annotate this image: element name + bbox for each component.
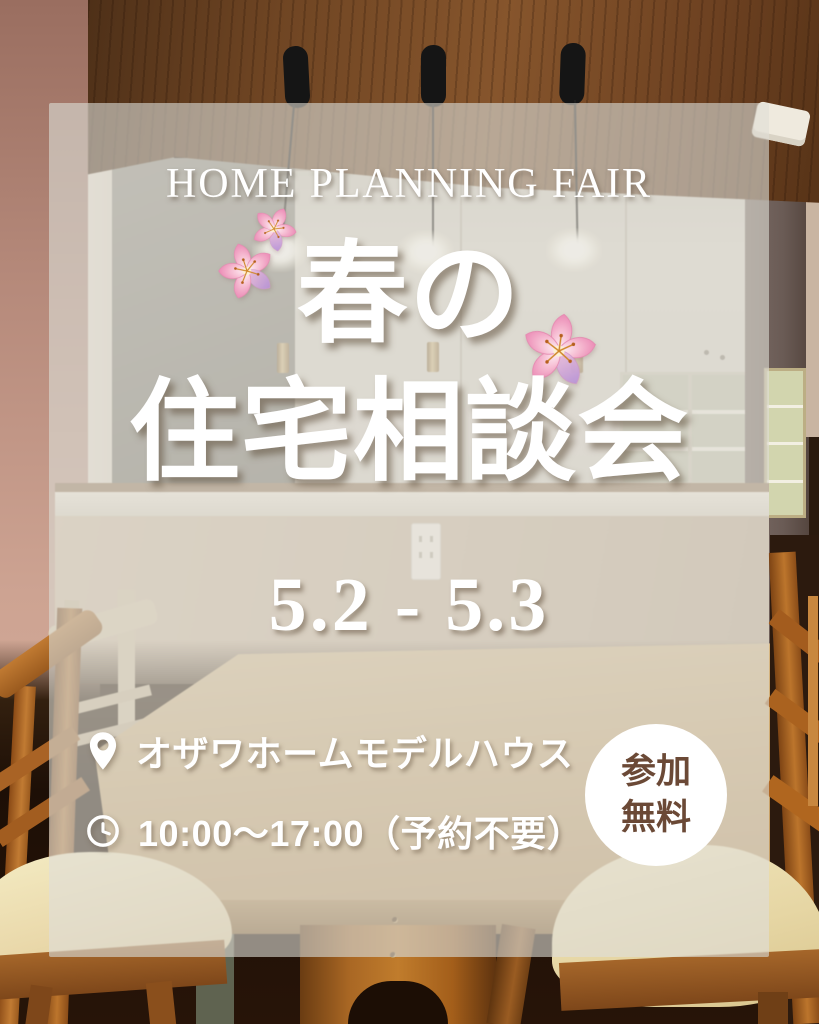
flyer-content: HOME PLANNING FAIR 春の 住宅相談会 5.2 - 5.3 オザ… (0, 0, 819, 1024)
title-line-1: 春の (297, 232, 521, 356)
clock-icon (86, 814, 120, 848)
title-line-2: 住宅相談会 (129, 370, 690, 494)
free-entry-badge-text: 参加 無料 (585, 724, 727, 866)
event-tagline: HOME PLANNING FAIR (49, 160, 769, 208)
event-dates: 5.2 - 5.3 (49, 562, 769, 649)
badge-line-2: 無料 (621, 795, 691, 841)
location-row: オザワホームモデルハウス (88, 728, 573, 774)
badge-line-1: 参加 (621, 749, 691, 795)
time-text: 10:00〜17:00（予約不要） (138, 805, 583, 857)
time-row: 10:00〜17:00（予約不要） (86, 808, 583, 854)
location-text: オザワホームモデルハウス (136, 725, 573, 777)
flyer: HOME PLANNING FAIR 春の 住宅相談会 5.2 - 5.3 オザ… (0, 0, 819, 1024)
event-title: 春の 住宅相談会 (49, 226, 769, 501)
map-pin-icon (88, 730, 118, 772)
